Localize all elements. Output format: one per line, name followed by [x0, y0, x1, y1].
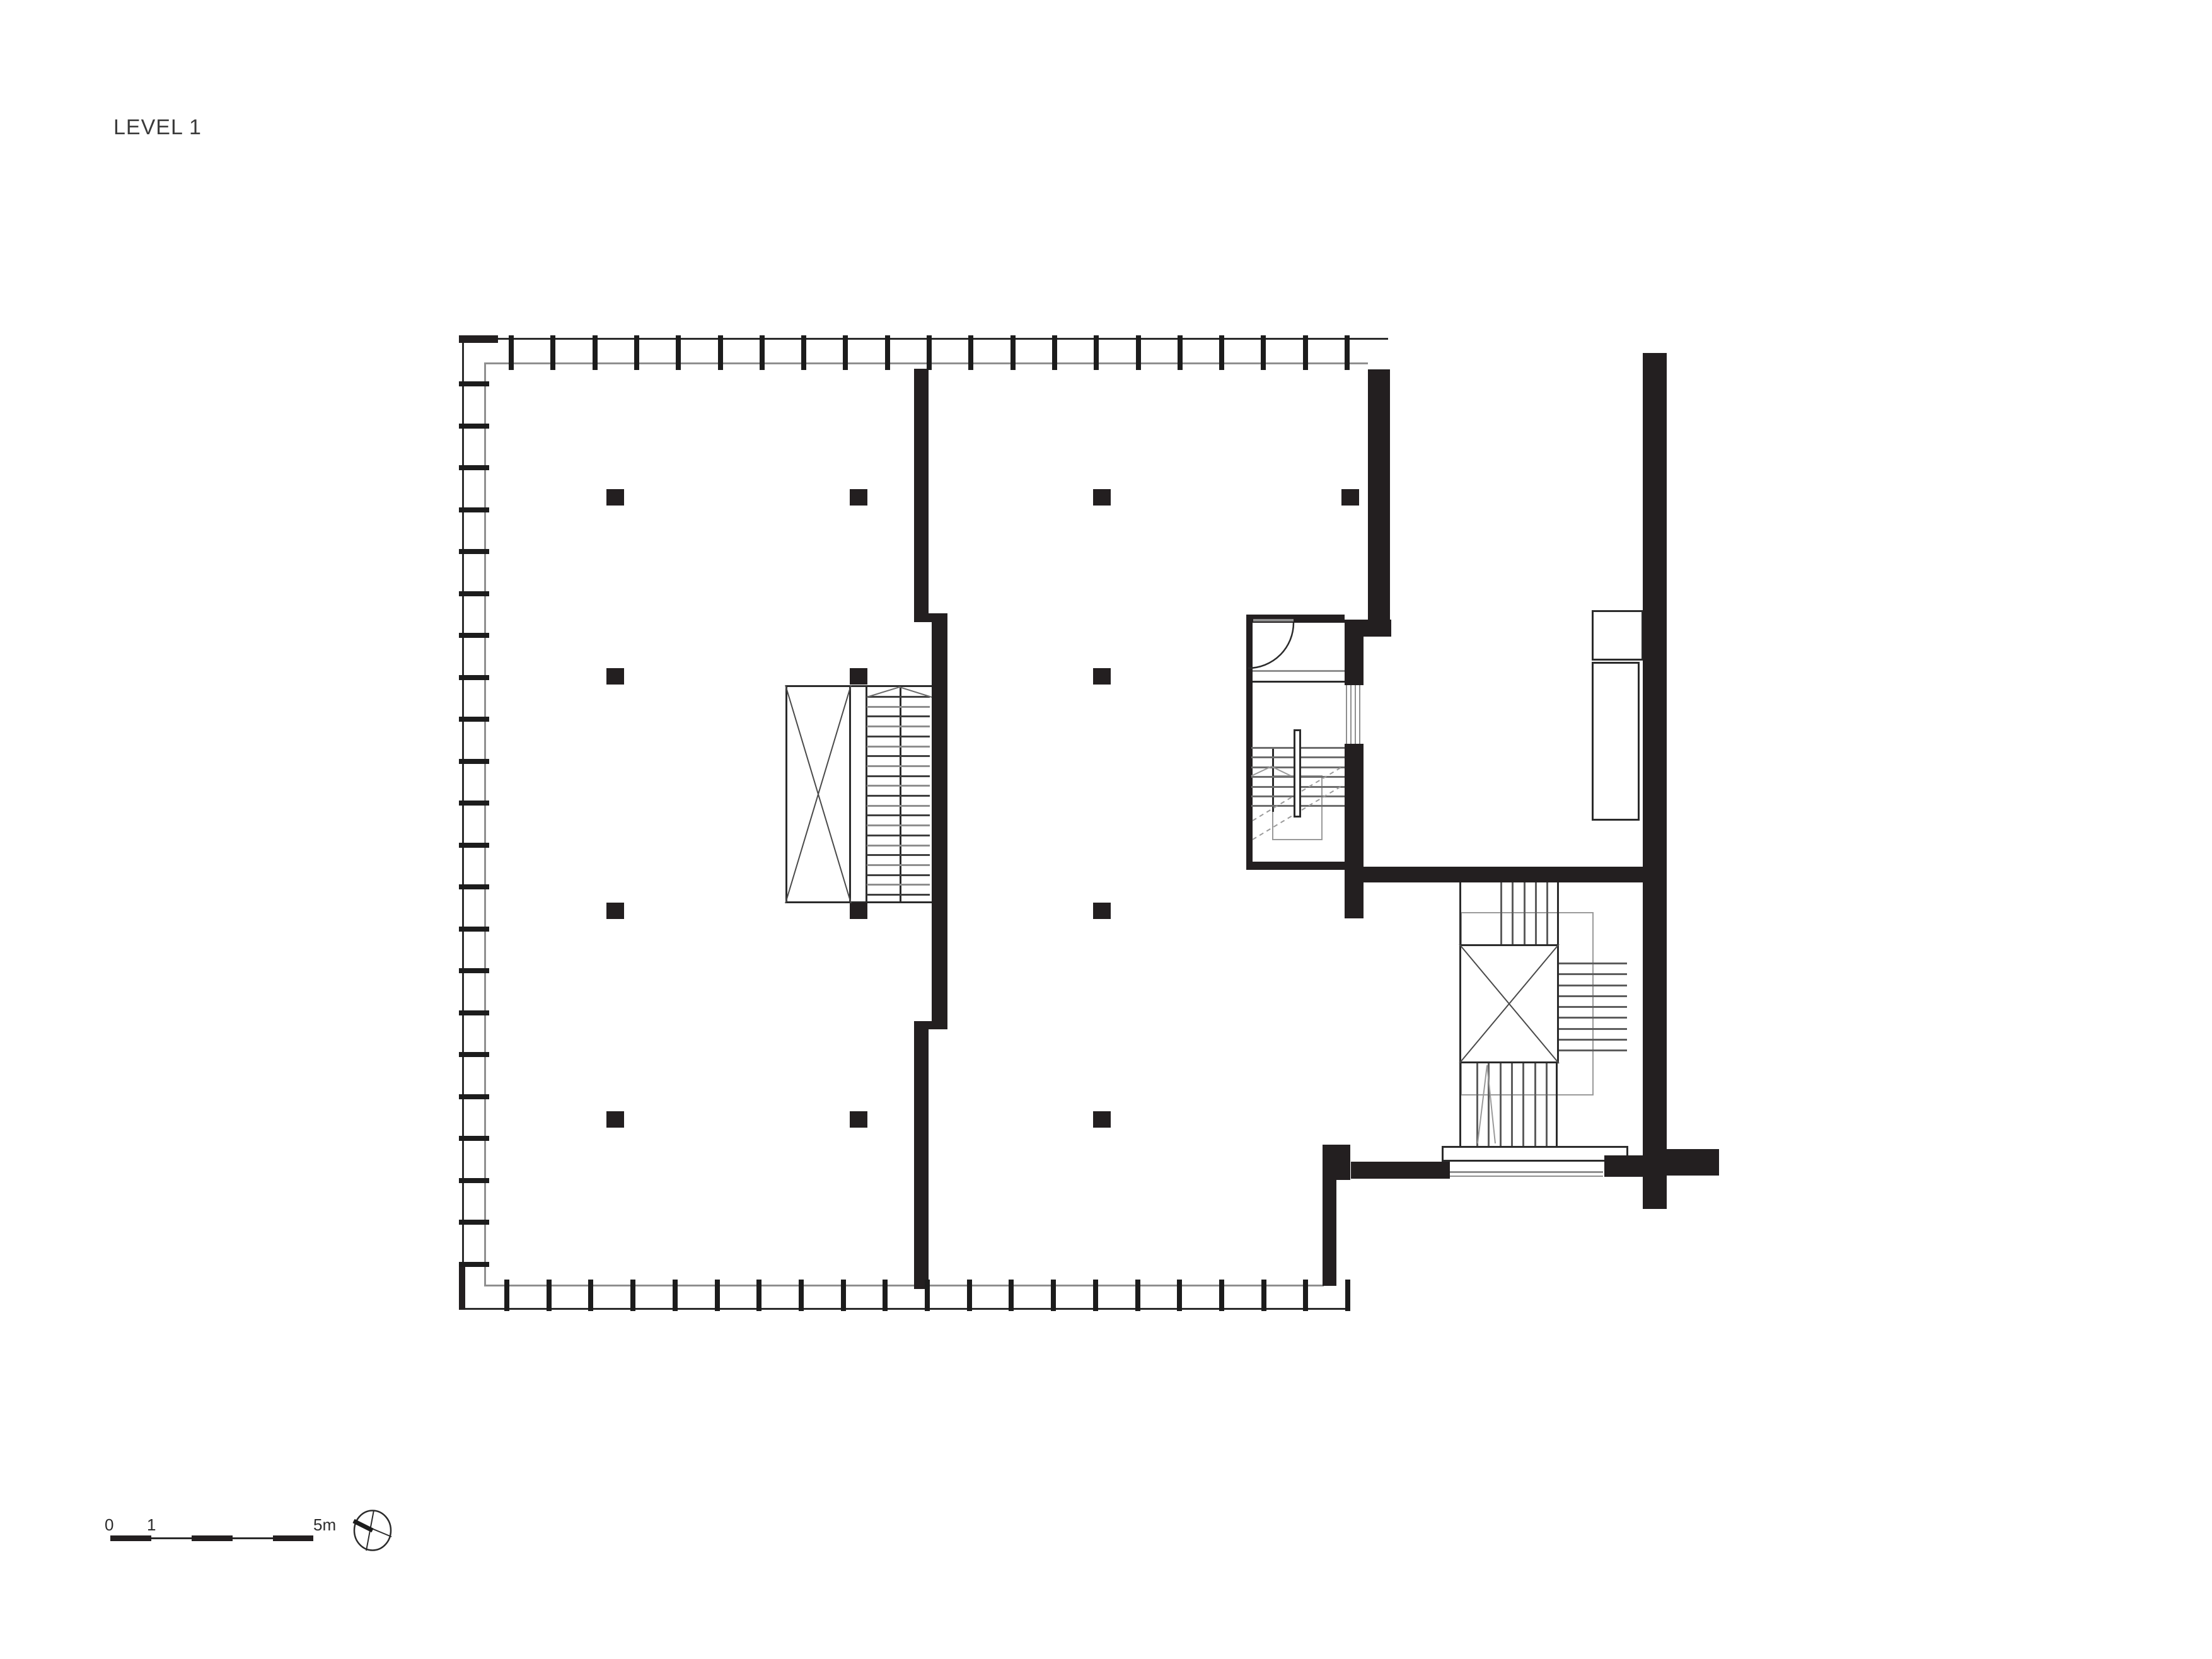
structural-column: [1093, 489, 1111, 506]
mullion-tick-top: [509, 335, 514, 370]
door-leaf: [1253, 619, 1294, 621]
stair2-door-glazing-b: [1450, 1176, 1603, 1177]
stair1-treads: [867, 755, 930, 757]
stair2-upper-treads: [1512, 882, 1514, 944]
stair1-treads: [867, 884, 930, 886]
structural-column: [606, 668, 624, 685]
stair1-treads: [867, 725, 930, 727]
wall-cabinet-upper: [1592, 610, 1643, 661]
mullion-tick-bottom: [547, 1280, 552, 1311]
wall-top-right-vertical: [1368, 369, 1390, 637]
stair2-right-treads: [1559, 962, 1627, 964]
mullion-tick-bottom: [799, 1280, 804, 1311]
mullion-tick-top: [927, 335, 932, 370]
stair2-upper-left-edge: [1459, 882, 1461, 944]
stair-room-counter-line: [1251, 670, 1345, 672]
central-wall-middle: [932, 613, 947, 1029]
stair2-landing: [1442, 1146, 1628, 1162]
stair1-treads: [867, 736, 930, 737]
mullion-tick-bottom: [883, 1280, 888, 1311]
mullion-tick-bottom: [967, 1280, 972, 1311]
stair2-lower-left-edge: [1459, 1063, 1461, 1147]
mullion-tick-top: [1219, 335, 1224, 370]
mullion-tick-left: [459, 801, 489, 806]
stair1-treads: [867, 715, 930, 717]
mullion-tick-left: [459, 633, 489, 638]
mullion-tick-left: [459, 717, 489, 722]
mullion-tick-top: [1094, 335, 1099, 370]
mullion-tick-left: [459, 1052, 489, 1057]
stair-room-line: [1251, 681, 1345, 683]
structural-column: [850, 489, 867, 506]
stair2-bottom-wall-right: [1604, 1155, 1644, 1177]
elevator-shaft-1: [785, 685, 851, 903]
mullion-tick-top: [1261, 335, 1266, 370]
stair1-left-edge: [866, 685, 867, 903]
mullion-tick-bottom: [1219, 1280, 1224, 1311]
scale-label-0: 0: [105, 1515, 113, 1535]
mullion-tick-bottom: [1135, 1280, 1140, 1311]
mullion-tick-bottom: [925, 1280, 930, 1311]
stair2-right-treads: [1559, 973, 1627, 975]
stair2-lower-treads: [1500, 1063, 1502, 1146]
mullion-tick-bottom: [1051, 1280, 1056, 1311]
mullion-tick-top: [1052, 335, 1057, 370]
mullion-tick-bottom: [630, 1280, 635, 1311]
stair1-top-edge: [851, 685, 932, 687]
mullion-tick-top: [676, 335, 681, 370]
mullion-tick-top: [593, 335, 598, 370]
stair2-top-wall: [1345, 867, 1643, 882]
mullion-tick-left: [459, 465, 489, 470]
stair1-treads: [867, 814, 930, 816]
facade-left-inner: [484, 362, 486, 1286]
stair2-right-treads: [1559, 1039, 1627, 1041]
facade-left-outer: [462, 338, 464, 1310]
stair2-right-treads: [1559, 1017, 1627, 1019]
mullion-tick-top: [1178, 335, 1183, 370]
mullion-tick-left: [459, 424, 489, 429]
mullion-tick-left: [459, 1220, 489, 1225]
structural-column: [1341, 489, 1359, 506]
mullion-tick-left: [459, 843, 489, 848]
stair-room-wall-bottom: [1246, 862, 1345, 870]
mullion-tick-bottom: [841, 1280, 846, 1311]
stair2-upper-treads: [1524, 882, 1526, 944]
stair-room-glazing: [1359, 685, 1360, 744]
facade-corner-cap-bottomleft: [459, 1263, 465, 1310]
structural-column: [606, 903, 624, 919]
stair1-treads: [867, 795, 930, 797]
scale-bar-segment-3: [273, 1535, 313, 1541]
mullion-tick-bottom: [1093, 1280, 1098, 1311]
stair1-treads: [867, 854, 930, 856]
stair1-treads: [867, 835, 930, 836]
stair2-lower-treads: [1546, 1063, 1548, 1146]
stair2-door-glazing-a: [1450, 1171, 1603, 1173]
stair2-right-treads: [1559, 1049, 1627, 1051]
stair2-lower-treads: [1522, 1063, 1524, 1146]
stair1-treads: [867, 785, 930, 787]
facade-bottom-outer: [462, 1308, 1347, 1310]
mullion-tick-top: [718, 335, 723, 370]
mullion-tick-top: [801, 335, 806, 370]
stair1-treads: [867, 805, 930, 807]
mullion-tick-top: [885, 335, 890, 370]
structural-column: [1093, 1111, 1111, 1128]
stair2-upper-treads: [1535, 882, 1537, 944]
mullion-tick-top: [550, 335, 555, 370]
stair2-upper-treads: [1546, 882, 1548, 944]
mullion-tick-top: [1303, 335, 1308, 370]
scale-label-1: 1: [147, 1515, 156, 1535]
stair1-treads: [867, 864, 930, 866]
mullion-tick-bottom: [673, 1280, 678, 1311]
mullion-tick-bottom: [588, 1280, 593, 1311]
mullion-tick-bottom: [1261, 1280, 1266, 1311]
floor-plan-drawing: [0, 0, 2212, 1659]
stair2-lower-right-edge: [1556, 1063, 1558, 1147]
stair-room-wall-right-upper: [1345, 620, 1364, 685]
structural-column: [1093, 668, 1111, 685]
mullion-tick-top: [843, 335, 848, 370]
mullion-tick-top: [1345, 335, 1350, 370]
stair2-upper-treads: [1500, 882, 1502, 944]
structural-column: [850, 1111, 867, 1128]
mullion-tick-bottom: [715, 1280, 720, 1311]
structural-column: [1093, 903, 1111, 919]
mullion-tick-left: [459, 1010, 489, 1015]
stair2-lower-treads: [1488, 1063, 1490, 1146]
scale-label-5m: 5m: [313, 1515, 336, 1535]
stair1-center-divider: [900, 685, 901, 903]
facade-top-outer: [462, 338, 1388, 340]
mullion-tick-left: [459, 759, 489, 764]
stair1-treads: [867, 706, 930, 708]
stair1-treads: [867, 775, 930, 777]
mullion-tick-left: [459, 675, 489, 680]
stair1-treads: [867, 696, 930, 698]
mullion-tick-left: [459, 1094, 489, 1099]
stair2-upper-right-edge: [1557, 882, 1559, 944]
stair1-treads: [867, 765, 930, 767]
central-wall-upper: [914, 369, 929, 622]
stair1-treads: [867, 746, 930, 748]
stair2-bottom-wall-left: [1351, 1162, 1450, 1179]
right-wall: [1643, 353, 1667, 1209]
mullion-tick-left: [459, 549, 489, 554]
mullion-tick-bottom: [1345, 1280, 1350, 1311]
stair2-right-treads: [1559, 1028, 1627, 1030]
mullion-tick-left: [459, 1178, 489, 1183]
stair-room-wall-left: [1246, 615, 1253, 862]
elevator-shaft-2: [1459, 944, 1559, 1063]
stair-room-glazing: [1346, 685, 1347, 744]
mullion-tick-left: [459, 884, 489, 889]
mullion-tick-top: [1136, 335, 1141, 370]
stair-room-glazing: [1355, 685, 1356, 744]
stair-room-handrail: [1294, 729, 1301, 818]
mullion-tick-left: [459, 968, 489, 973]
structural-column: [850, 668, 867, 685]
compass-north-arrow-icon: [350, 1506, 396, 1554]
floor-plan-sheet: LEVEL 1 0 1 5m: [0, 0, 2212, 1659]
structural-column: [606, 1111, 624, 1128]
stair1-treads: [867, 874, 930, 876]
stair2-lower-treads: [1511, 1063, 1513, 1146]
structural-column: [850, 903, 867, 919]
facade-bottom-inner: [484, 1285, 1324, 1286]
stair2-right-treads: [1559, 1006, 1627, 1008]
facade-corner-cap-topleft: [459, 335, 498, 343]
stair1-treads: [867, 845, 930, 847]
mullion-tick-left: [459, 1262, 489, 1267]
stair1-treads: [867, 824, 930, 826]
mullion-tick-bottom: [504, 1280, 509, 1311]
mullion-tick-top: [634, 335, 639, 370]
mullion-tick-bottom: [1009, 1280, 1014, 1311]
mullion-tick-left: [459, 507, 489, 512]
stair2-lower-treads: [1534, 1063, 1536, 1146]
stair2-right-treads: [1559, 985, 1627, 986]
structural-column: [606, 489, 624, 506]
scale-bar-segment-1: [110, 1535, 151, 1541]
mullion-tick-left: [459, 381, 489, 386]
mullion-tick-top: [968, 335, 973, 370]
mullion-tick-left: [459, 591, 489, 596]
mullion-tick-top: [1010, 335, 1016, 370]
stair2-right-treads: [1559, 995, 1627, 997]
scale-bar-segment-2: [192, 1535, 233, 1541]
stair-room-glazing: [1350, 685, 1352, 744]
mullion-tick-bottom: [756, 1280, 761, 1311]
central-wall-lower: [914, 1021, 929, 1289]
mullion-tick-top: [760, 335, 765, 370]
mullion-tick-left: [459, 927, 489, 932]
stair1-treads: [867, 894, 930, 896]
mullion-tick-bottom: [1303, 1280, 1308, 1311]
mullion-tick-bottom: [1177, 1280, 1182, 1311]
l-wall-top: [1323, 1145, 1350, 1180]
l-wall-leg: [1323, 1180, 1336, 1286]
wall-cabinet-lower: [1592, 662, 1640, 821]
right-wall-arm: [1667, 1149, 1719, 1176]
stair-room-wall-right-lower: [1345, 744, 1364, 918]
mullion-tick-left: [459, 1136, 489, 1141]
stair2-lower-treads: [1476, 1063, 1478, 1146]
